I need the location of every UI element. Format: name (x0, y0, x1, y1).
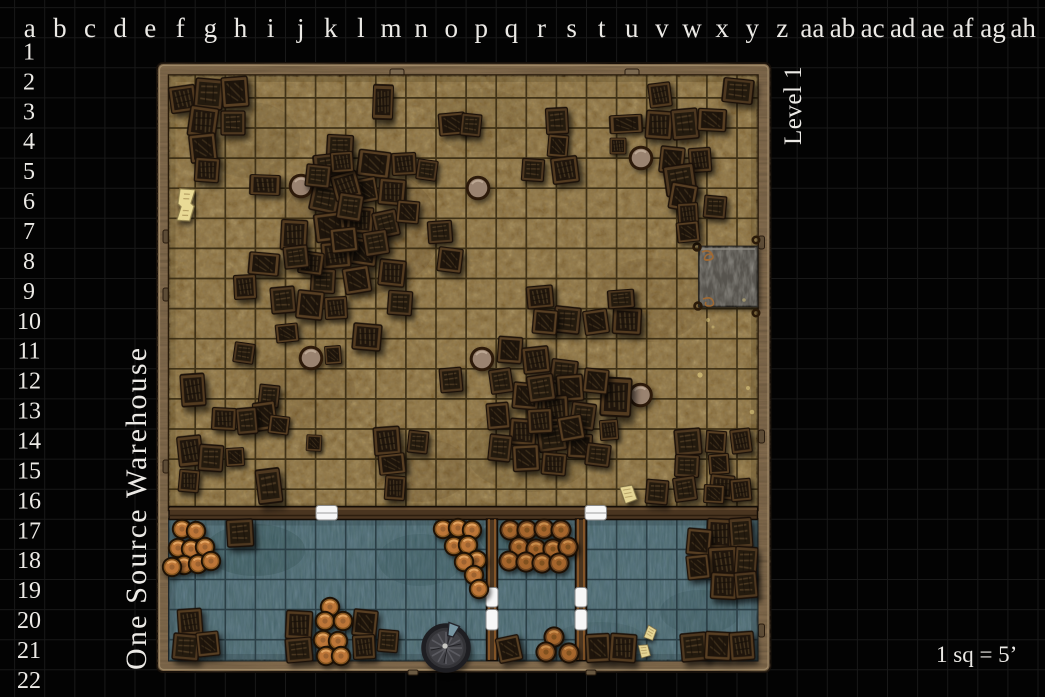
svg-text:7: 7 (23, 219, 35, 245)
svg-text:10: 10 (17, 309, 41, 335)
svg-text:19: 19 (17, 578, 41, 604)
svg-text:12: 12 (17, 369, 41, 395)
svg-text:s: s (566, 13, 577, 43)
svg-text:h: h (234, 13, 248, 43)
svg-text:aa: aa (800, 13, 824, 43)
svg-text:d: d (113, 13, 127, 43)
svg-text:q: q (505, 13, 519, 43)
svg-text:11: 11 (17, 339, 40, 365)
svg-text:r: r (537, 13, 546, 43)
svg-text:m: m (380, 13, 401, 43)
svg-text:c: c (84, 13, 96, 43)
svg-text:14: 14 (17, 429, 41, 455)
svg-text:ah: ah (1010, 13, 1036, 43)
svg-text:o: o (444, 13, 458, 43)
svg-text:y: y (745, 13, 759, 43)
svg-text:5: 5 (23, 159, 35, 185)
svg-text:One Source Warehouse: One Source Warehouse (120, 346, 153, 670)
svg-text:b: b (53, 13, 67, 43)
svg-text:15: 15 (17, 458, 41, 484)
svg-text:x: x (715, 13, 729, 43)
svg-text:ae: ae (921, 13, 945, 43)
svg-text:Level 1: Level 1 (780, 66, 807, 145)
svg-text:ad: ad (890, 13, 916, 43)
svg-text:w: w (682, 13, 702, 43)
svg-text:t: t (598, 13, 606, 43)
svg-text:20: 20 (17, 608, 41, 634)
svg-text:1: 1 (23, 39, 35, 65)
svg-text:1 sq = 5’: 1 sq = 5’ (936, 642, 1017, 667)
svg-text:n: n (414, 13, 428, 43)
svg-text:v: v (655, 13, 669, 43)
svg-text:g: g (204, 13, 218, 43)
svg-text:e: e (144, 13, 156, 43)
svg-text:k: k (324, 13, 338, 43)
svg-text:ag: ag (980, 13, 1005, 43)
svg-text:2: 2 (23, 69, 35, 95)
svg-text:6: 6 (23, 189, 35, 215)
svg-text:j: j (296, 13, 305, 43)
svg-text:i: i (267, 13, 275, 43)
svg-text:ac: ac (861, 13, 885, 43)
svg-text:9: 9 (23, 279, 35, 305)
svg-text:22: 22 (17, 668, 41, 694)
svg-text:ab: ab (830, 13, 855, 43)
svg-text:l: l (357, 13, 365, 43)
svg-text:f: f (176, 13, 185, 43)
svg-text:4: 4 (23, 129, 35, 155)
svg-text:18: 18 (17, 548, 41, 574)
svg-text:17: 17 (17, 518, 41, 544)
svg-text:21: 21 (17, 638, 41, 664)
svg-text:u: u (625, 13, 639, 43)
svg-text:3: 3 (23, 99, 35, 125)
svg-text:z: z (776, 13, 788, 43)
svg-text:af: af (952, 13, 973, 43)
svg-text:13: 13 (17, 399, 41, 425)
svg-text:8: 8 (23, 249, 35, 275)
svg-text:16: 16 (17, 488, 41, 514)
svg-text:p: p (475, 13, 489, 43)
